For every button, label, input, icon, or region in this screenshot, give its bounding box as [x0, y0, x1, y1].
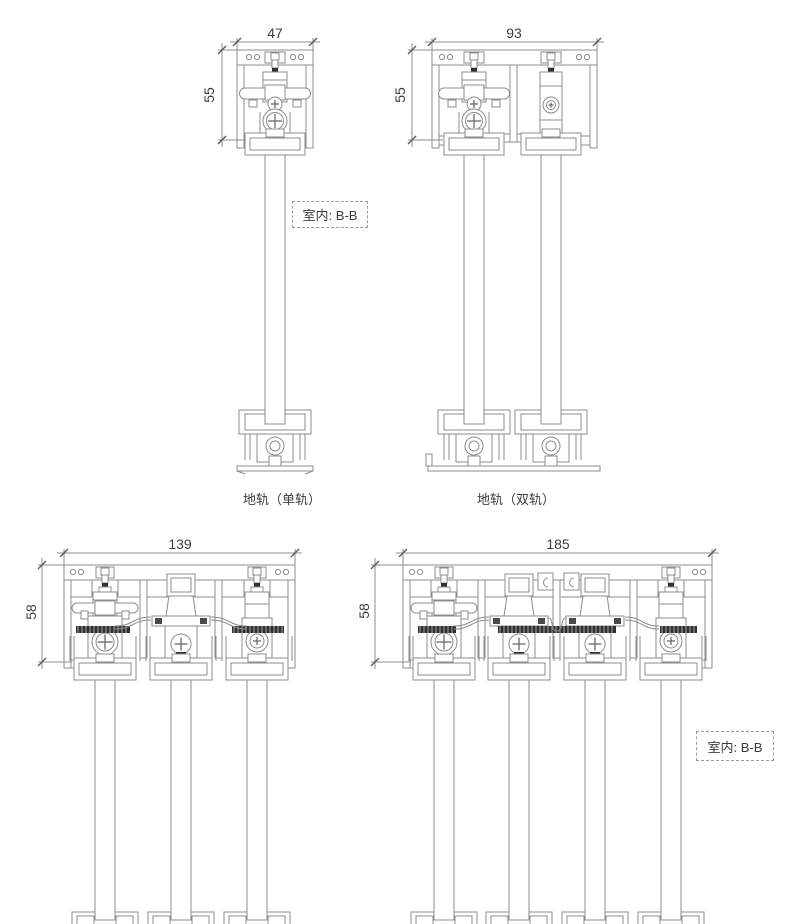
dim-quad-width: 185 — [534, 536, 582, 552]
drawing-sheet: 47 93 55 55 139 185 58 58 室内: B-B 室内: B-… — [0, 0, 790, 924]
track-triple — [38, 549, 302, 924]
dim-top-single-height: 55 — [201, 71, 217, 119]
indoor-section-label-bottom: 室内: B-B — [696, 731, 774, 761]
top-track-double — [408, 38, 604, 471]
dim-top-single-width: 47 — [251, 25, 299, 41]
technical-drawing-canvas — [0, 0, 790, 924]
dim-top-double-width: 93 — [490, 25, 538, 41]
caption-floor-track-single: 地轨（单轨） — [212, 492, 352, 508]
dim-quad-height: 58 — [356, 587, 372, 635]
dim-triple-width: 139 — [156, 536, 204, 552]
dim-triple-height: 58 — [23, 588, 39, 636]
top-track-single — [218, 38, 320, 474]
track-quad — [371, 549, 719, 924]
caption-floor-track-double: 地轨（双轨） — [446, 492, 586, 508]
indoor-section-label-top: 室内: B-B — [292, 201, 368, 228]
dim-top-double-height: 55 — [392, 71, 408, 119]
